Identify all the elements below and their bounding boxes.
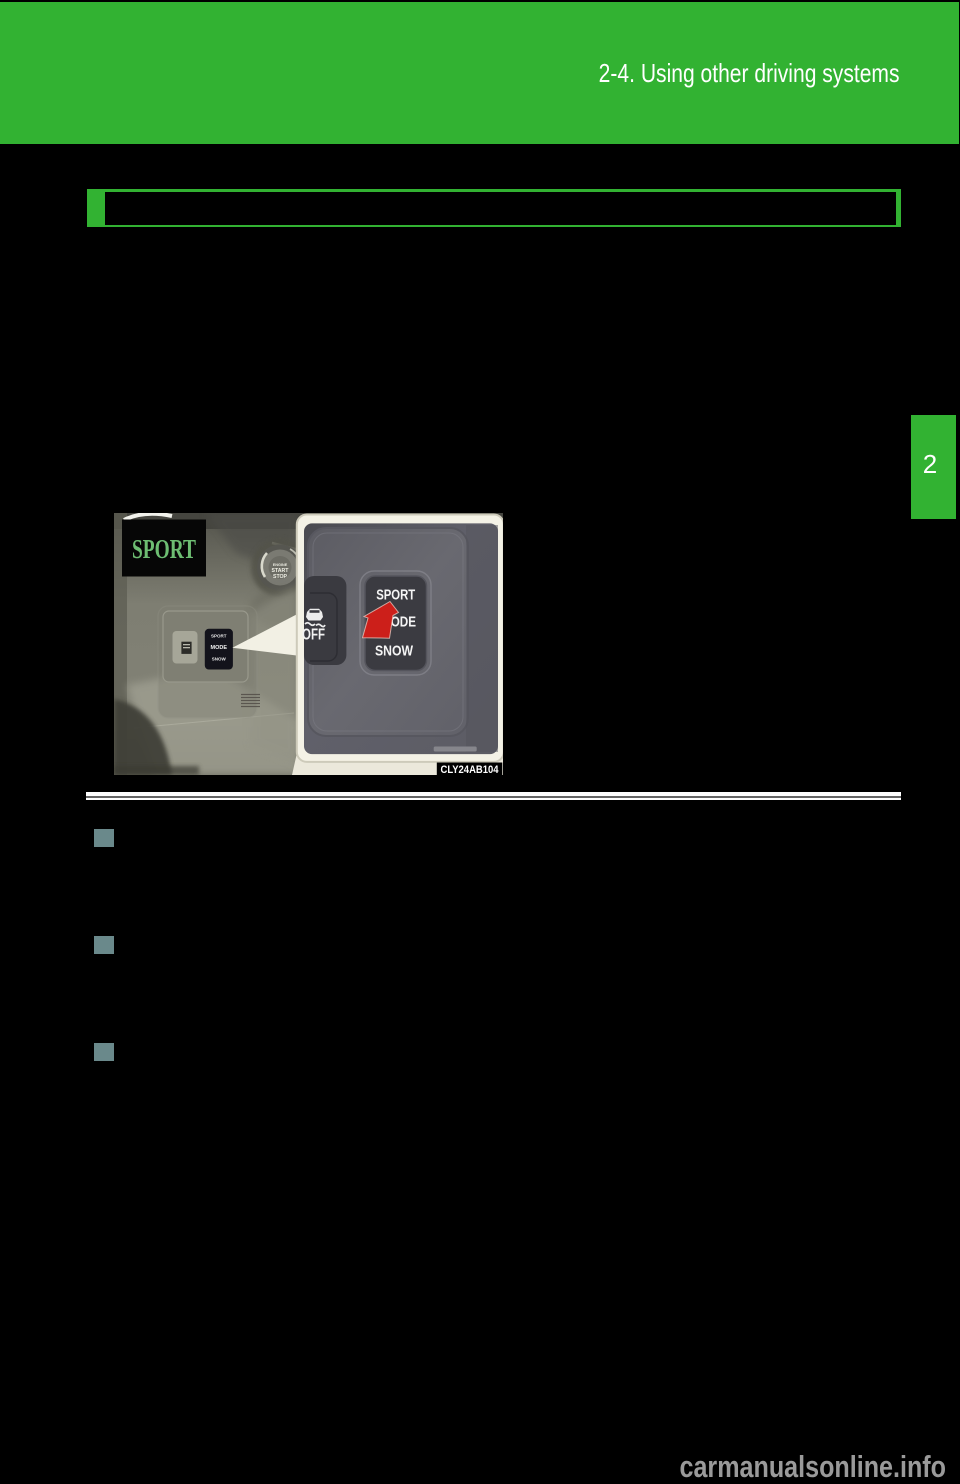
svg-text:MODE: MODE xyxy=(211,645,228,651)
svg-text:OFF: OFF xyxy=(302,627,325,644)
svg-text:SNOW: SNOW xyxy=(212,657,227,662)
svg-text:CLY24AB104: CLY24AB104 xyxy=(441,764,500,775)
svg-text:SPORT: SPORT xyxy=(132,534,196,564)
svg-text:SNOW: SNOW xyxy=(375,643,414,660)
svg-text:STOP: STOP xyxy=(273,574,288,580)
svg-text:ENGINE: ENGINE xyxy=(273,563,288,567)
svg-text:SPORT: SPORT xyxy=(211,634,227,639)
svg-text:SPORT: SPORT xyxy=(376,587,415,603)
